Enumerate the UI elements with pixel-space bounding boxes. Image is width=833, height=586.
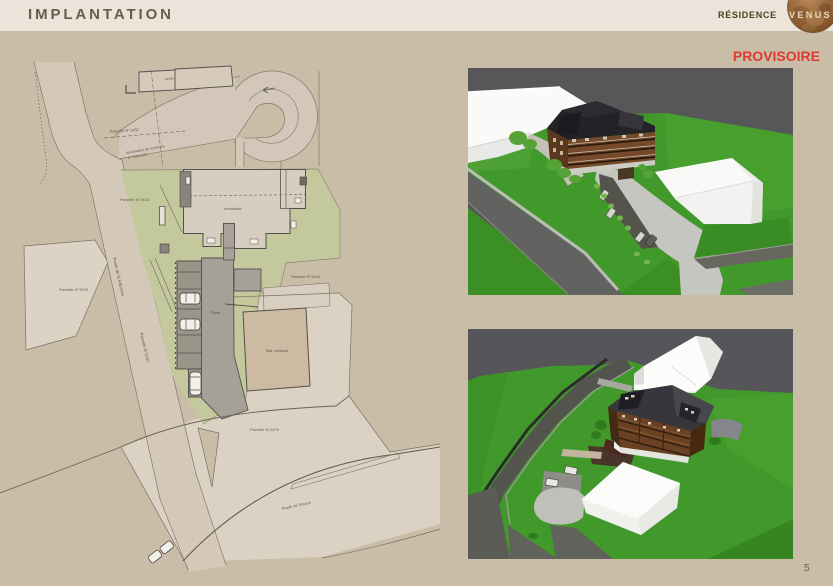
svg-text:Parcelle N°1033: Parcelle N°1033 [59,287,89,292]
svg-text:Place: Place [210,310,221,315]
svg-text:Parcelle N°1434: Parcelle N°1434 [120,197,150,202]
svg-text:Parcelle N°1435: Parcelle N°1435 [291,274,321,279]
svg-text:sortie: sortie [165,76,174,81]
svg-text:Immeuble: Immeuble [224,206,242,211]
svg-text:Parcelle N°1470: Parcelle N°1470 [250,427,280,432]
svg-text:Bât. existant: Bât. existant [266,348,289,353]
